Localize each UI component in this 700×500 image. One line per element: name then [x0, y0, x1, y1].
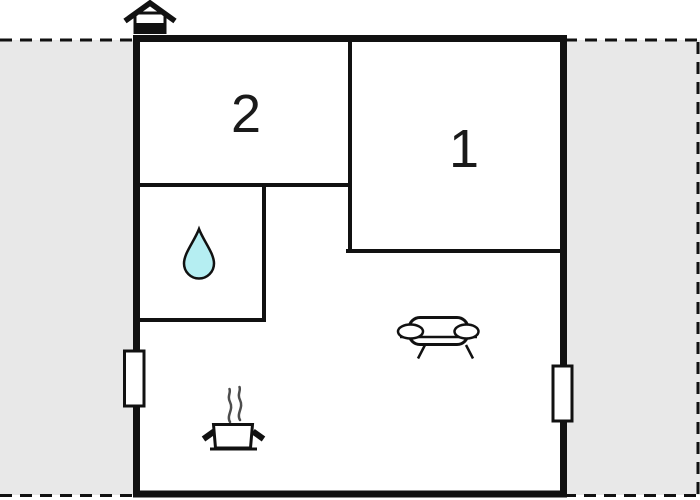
window-left-icon: [125, 351, 145, 406]
pot-body: [214, 425, 253, 449]
house-door: [134, 23, 167, 33]
window-right-icon: [553, 366, 572, 421]
floor-plan-canvas: 2 1: [0, 0, 700, 500]
room-2-label: 2: [231, 84, 261, 144]
room-1-label: 1: [449, 119, 479, 179]
sofa-armrest-left: [398, 325, 423, 339]
floor-plan-page: 2 1: [0, 0, 700, 500]
sofa-armrest-right: [455, 325, 479, 339]
outside-area-right: [565, 40, 700, 495]
outside-area-left: [0, 40, 133, 495]
